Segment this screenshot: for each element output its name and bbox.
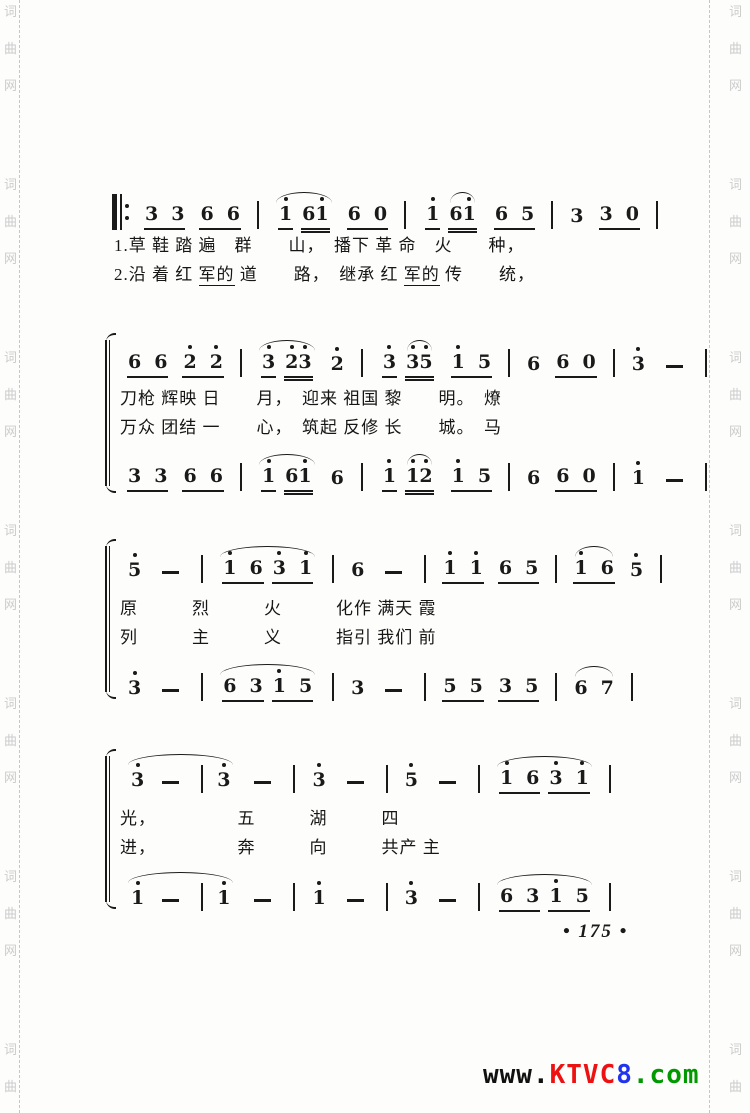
watermark-char: 曲 <box>4 561 17 574</box>
watermark-char: 网 <box>4 598 17 611</box>
slur-arc <box>220 546 315 557</box>
note: 15 <box>451 351 492 378</box>
barline <box>478 765 480 793</box>
watermark-char: 曲 <box>4 42 17 55</box>
repeat-sign <box>112 194 129 230</box>
barline <box>332 555 334 583</box>
slur-arc <box>497 756 592 767</box>
watermark-char: 词 <box>4 351 17 364</box>
music-line-sys3-voice1: 5163161165165 <box>120 542 671 584</box>
barline <box>361 349 363 377</box>
watermark-char: 词 <box>729 1043 742 1056</box>
slur-arc <box>450 192 474 203</box>
watermark-left-column: 词曲网词曲网词曲网词曲网词曲网词曲网词曲网词曲网 <box>4 5 17 1113</box>
slur-arc <box>407 340 431 351</box>
bracket-hook-icon <box>106 749 116 758</box>
lyric-segment: 1.草 鞋 踏 遍 群 山， 播下 革 命 火 种， <box>114 236 525 255</box>
watermark-char: 曲 <box>4 734 17 747</box>
watermark-char: 曲 <box>729 215 742 228</box>
note: 1 <box>261 465 276 492</box>
right-dashed-border <box>709 0 710 1113</box>
slur-arc <box>575 666 612 677</box>
note: 61 <box>301 203 329 230</box>
dash-note <box>162 571 179 574</box>
website-segment: www. <box>483 1060 550 1090</box>
watermark-char: 网 <box>4 944 17 957</box>
watermark-char: 词 <box>729 178 742 191</box>
lyric-segment: 光， 五 湖 四 <box>120 809 400 828</box>
bracket-hook-icon <box>106 333 116 342</box>
lyrics-verse-2: 2.沿 着 红 军的 道 路， 继承 红 军的 传 统， <box>114 260 535 285</box>
note: 1 <box>278 203 293 230</box>
barline <box>551 201 553 229</box>
note: 61 <box>284 465 312 492</box>
note: 60 <box>555 465 596 492</box>
watermark-char: 词 <box>4 524 17 537</box>
note: 3 <box>216 769 231 794</box>
lyric-segment: 传 统， <box>440 265 535 284</box>
slur-arc <box>220 664 315 675</box>
note: 35 <box>498 675 539 702</box>
music-line-sys2-voice1: 66223232335156603 <box>120 336 716 378</box>
watermark-char: 网 <box>729 771 742 784</box>
note: 6 <box>526 353 541 378</box>
note: 31 <box>548 767 589 794</box>
music-line-sys2-voice2: 33661616112156601 <box>120 450 716 492</box>
lyrics-sys2-verse-2: 万众 团结 一 心， 筑起 反修 长 城。 马 <box>120 413 502 438</box>
note: 6 <box>350 559 365 584</box>
note: 16 <box>573 557 614 584</box>
note: 3 <box>127 677 142 702</box>
watermark-char: 词 <box>4 1043 17 1056</box>
barline <box>613 349 615 377</box>
note: 31 <box>272 557 313 584</box>
note: 3 <box>350 677 365 702</box>
lyrics-sys3-verse-1: 原 烈 火 化作 满天 霞 <box>120 594 437 619</box>
barline <box>201 883 203 911</box>
sheet-music-page: 词曲网词曲网词曲网词曲网词曲网词曲网词曲网词曲网 词曲网词曲网词曲网词曲网词曲网… <box>0 0 750 1113</box>
note-group: 323 <box>257 351 317 378</box>
note: 1 <box>311 887 326 912</box>
lyric-segment: 2.沿 着 红 <box>114 265 199 284</box>
note: 3 <box>261 351 276 378</box>
note: 5 <box>404 769 419 794</box>
note: 3 <box>130 769 145 794</box>
barline <box>656 201 658 229</box>
note: 3 <box>404 887 419 912</box>
lyric-segment: 原 烈 火 化作 满天 霞 <box>120 599 437 618</box>
note: 30 <box>599 203 640 230</box>
dash-note <box>162 689 179 692</box>
barline <box>613 463 615 491</box>
website-segment: .com <box>633 1060 700 1090</box>
lyrics-sys4-verse-2: 进， 奔 向 共产 主 <box>120 833 441 858</box>
slur-arc <box>575 546 612 557</box>
watermark-char: 网 <box>729 252 742 265</box>
dash-note <box>439 899 456 902</box>
note: 5 <box>629 559 644 584</box>
watermark-char: 曲 <box>729 42 742 55</box>
barline <box>386 883 388 911</box>
watermark-char: 曲 <box>4 1080 17 1093</box>
watermark-char: 网 <box>4 252 17 265</box>
bracket-hook-icon <box>106 900 116 909</box>
lyric-segment: 刀枪 辉映 日 月， 迎来 祖国 黎 明。 燎 <box>120 389 502 408</box>
note: 15 <box>272 675 313 702</box>
note: 6 <box>330 467 345 492</box>
slur-arc <box>259 340 315 351</box>
watermark-char: 网 <box>729 425 742 438</box>
lyrics-sys2-verse-1: 刀枪 辉映 日 月， 迎来 祖国 黎 明。 燎 <box>120 384 502 409</box>
note: 60 <box>555 351 596 378</box>
note-group: 161 <box>274 203 334 230</box>
note: 3 <box>569 205 584 230</box>
bracket-hook-icon <box>106 539 116 548</box>
barline <box>705 463 707 491</box>
system-2-bracket <box>105 340 111 486</box>
lyric-segment: 进， 奔 向 共产 主 <box>120 838 441 857</box>
dash-note <box>162 781 179 784</box>
barline <box>609 765 611 793</box>
lyrics-verse-1: 1.草 鞋 踏 遍 群 山， 播下 革 命 火 种， <box>114 231 525 256</box>
barline <box>257 201 259 229</box>
dash-note <box>347 781 364 784</box>
watermark-char: 词 <box>729 697 742 710</box>
note-group: 33 <box>126 765 235 794</box>
barline <box>386 765 388 793</box>
barline <box>201 673 203 701</box>
dash-note <box>385 689 402 692</box>
lyrics-sys4-verse-1: 光， 五 湖 四 <box>120 804 400 829</box>
music-line-sys4-voice2: 11136315 <box>120 870 620 912</box>
barline <box>478 883 480 911</box>
bracket-hook-icon <box>106 690 116 699</box>
note-group: 11 <box>126 883 235 912</box>
note: 1 <box>216 887 231 912</box>
note: 1 <box>130 887 145 912</box>
barline <box>555 673 557 701</box>
lyric-segment: 军的 <box>199 265 235 286</box>
watermark-char: 网 <box>4 425 17 438</box>
dash-note <box>347 899 364 902</box>
note: 15 <box>451 465 492 492</box>
website-segment: KTVC <box>550 1060 617 1090</box>
note: 22 <box>182 351 223 378</box>
slur-arc <box>128 872 233 883</box>
watermark-char: 网 <box>729 944 742 957</box>
barline <box>240 349 242 377</box>
note: 3 <box>311 769 326 794</box>
slur-arc <box>407 454 431 465</box>
watermark-char: 词 <box>4 697 17 710</box>
note: 23 <box>284 351 312 378</box>
music-line-sys3-voice2: 363153553567 <box>120 660 642 702</box>
note-group: 161 <box>257 465 317 492</box>
barline <box>404 201 406 229</box>
system-4-bracket <box>105 756 111 902</box>
barline <box>555 555 557 583</box>
music-line-verse: 33661616016165330 <box>112 188 667 230</box>
system-3-bracket <box>105 546 111 692</box>
slur-arc <box>259 454 315 465</box>
page-number: • 175 • <box>563 921 628 943</box>
note: 11 <box>442 557 483 584</box>
note: 63 <box>499 885 540 912</box>
barline <box>240 463 242 491</box>
note: 55 <box>442 675 483 702</box>
watermark-char: 曲 <box>4 215 17 228</box>
note: 3 <box>631 353 646 378</box>
barline <box>293 765 295 793</box>
slur-arc <box>497 874 592 885</box>
barline <box>332 673 334 701</box>
watermark-char: 网 <box>4 79 17 92</box>
watermark-char: 网 <box>729 598 742 611</box>
note: 65 <box>494 203 535 230</box>
note: 16 <box>499 767 540 794</box>
note: 67 <box>573 677 614 702</box>
watermark-char: 曲 <box>4 907 17 920</box>
watermark-right-column: 词曲网词曲网词曲网词曲网词曲网词曲网词曲网词曲网 <box>729 5 742 1113</box>
watermark-char: 词 <box>729 870 742 883</box>
note: 1 <box>382 465 397 492</box>
watermark-char: 曲 <box>729 561 742 574</box>
lyric-segment: 军的 <box>404 265 440 286</box>
note: 6 <box>526 467 541 492</box>
barline <box>293 883 295 911</box>
note-group: 161 <box>421 203 481 230</box>
watermark-char: 曲 <box>729 388 742 401</box>
watermark-char: 词 <box>4 178 17 191</box>
note: 15 <box>548 885 589 912</box>
note: 61 <box>448 203 476 230</box>
watermark-char: 网 <box>729 79 742 92</box>
lyric-segment: 道 路， 继承 红 <box>235 265 404 284</box>
bracket-hook-icon <box>106 484 116 493</box>
slur-arc <box>128 754 233 765</box>
dash-note <box>254 899 271 902</box>
dash-note <box>666 365 683 368</box>
note: 2 <box>330 353 345 378</box>
watermark-char: 网 <box>4 771 17 784</box>
website-segment: 8 <box>616 1060 633 1090</box>
watermark-char: 词 <box>4 5 17 18</box>
note: 66 <box>199 203 240 230</box>
note: 65 <box>498 557 539 584</box>
dash-note <box>385 571 402 574</box>
note: 16 <box>222 557 263 584</box>
barline <box>508 463 510 491</box>
barline <box>424 673 426 701</box>
note: 60 <box>347 203 388 230</box>
watermark-char: 词 <box>729 351 742 364</box>
slur-arc <box>276 192 332 203</box>
barline <box>508 349 510 377</box>
watermark-char: 曲 <box>729 1080 742 1093</box>
watermark-char: 曲 <box>729 907 742 920</box>
note: 1 <box>631 467 646 492</box>
watermark-char: 词 <box>4 870 17 883</box>
note-group: 1631 <box>218 557 317 584</box>
watermark-char: 词 <box>729 524 742 537</box>
note: 66 <box>182 465 223 492</box>
watermark-char: 曲 <box>4 388 17 401</box>
music-line-sys4-voice1: 33351631 <box>120 752 620 794</box>
barline <box>609 883 611 911</box>
note: 3 <box>382 351 397 378</box>
note: 33 <box>127 465 168 492</box>
lyrics-sys3-verse-2: 列 主 义 指引 我们 前 <box>120 623 437 648</box>
website-watermark: www.KTVC8.com <box>483 1060 700 1090</box>
dash-note <box>666 479 683 482</box>
note-group: 1631 <box>495 767 594 794</box>
barline <box>424 555 426 583</box>
watermark-char: 曲 <box>729 734 742 747</box>
barline <box>660 555 662 583</box>
note: 66 <box>127 351 168 378</box>
barline <box>201 765 203 793</box>
dash-note <box>439 781 456 784</box>
left-dashed-border <box>19 0 20 1113</box>
note: 33 <box>144 203 185 230</box>
note-group: 6315 <box>218 675 317 702</box>
dash-note <box>162 899 179 902</box>
note: 35 <box>405 351 433 378</box>
dash-note <box>254 781 271 784</box>
watermark-char: 词 <box>729 5 742 18</box>
barline <box>201 555 203 583</box>
barline <box>361 463 363 491</box>
note: 5 <box>127 559 142 584</box>
note: 63 <box>222 675 263 702</box>
barline <box>705 349 707 377</box>
note-group: 335 <box>378 351 438 378</box>
note-group: 6315 <box>495 885 594 912</box>
lyric-segment: 列 主 义 指引 我们 前 <box>120 628 437 647</box>
note: 12 <box>405 465 433 492</box>
lyric-segment: 万众 团结 一 心， 筑起 反修 长 城。 马 <box>120 418 502 437</box>
barline <box>631 673 633 701</box>
note-group: 112 <box>378 465 438 492</box>
note: 1 <box>425 203 440 230</box>
